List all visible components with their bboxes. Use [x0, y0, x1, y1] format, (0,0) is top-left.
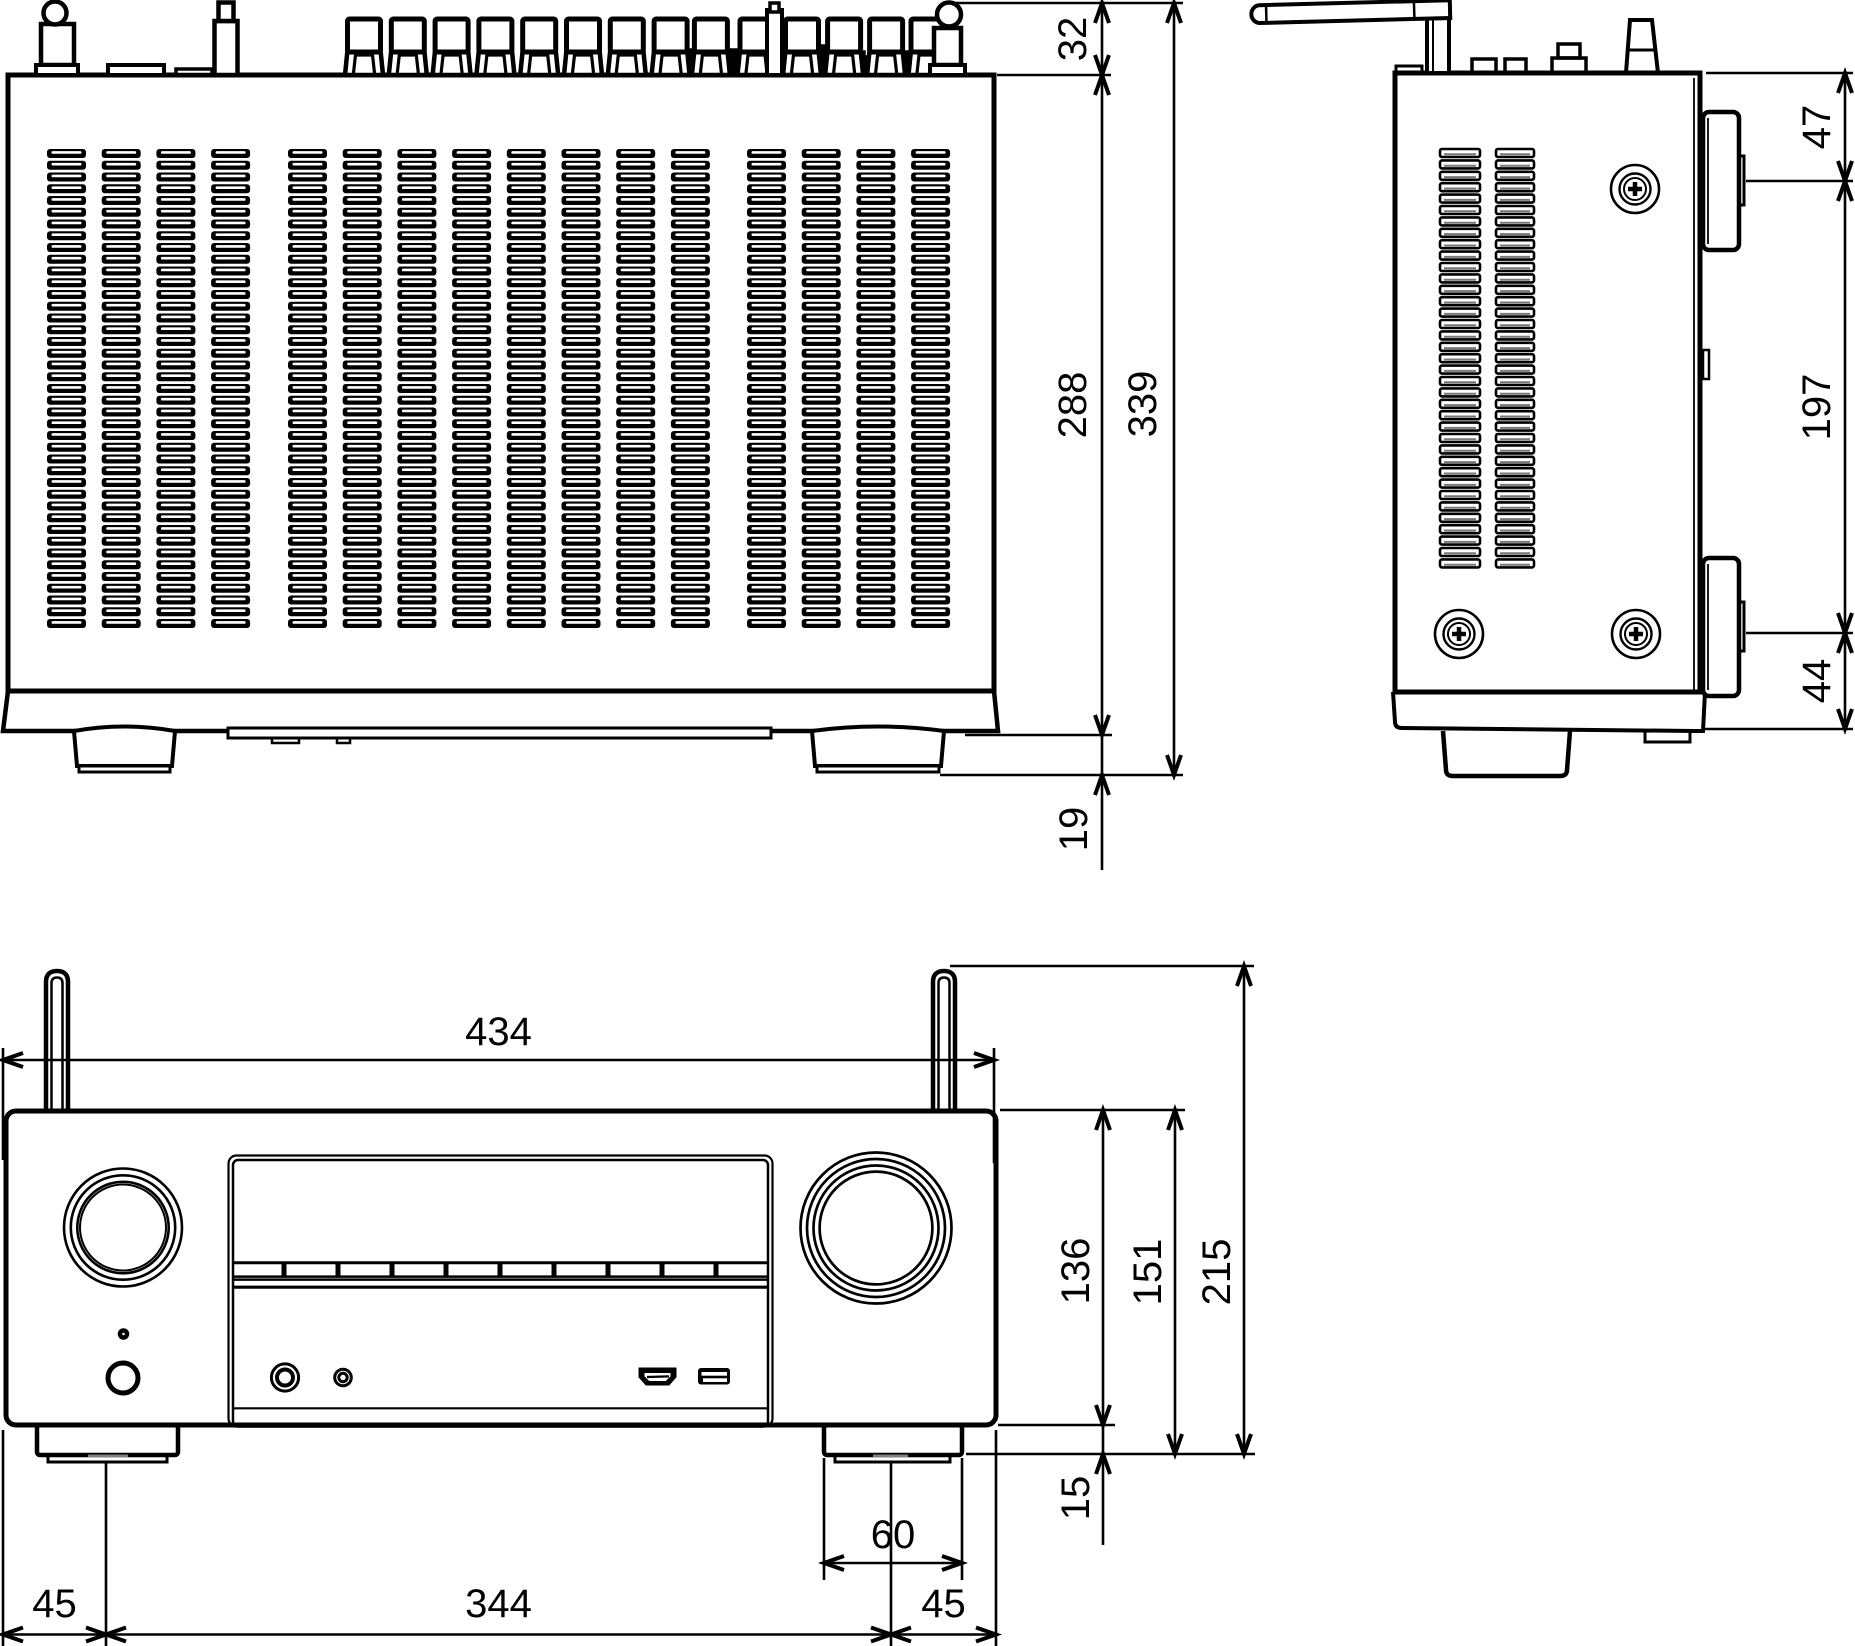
svg-text:344: 344 [465, 1582, 532, 1626]
svg-text:339: 339 [1121, 371, 1165, 438]
svg-text:45: 45 [921, 1582, 966, 1626]
svg-text:45: 45 [32, 1582, 77, 1626]
svg-text:60: 60 [871, 1513, 916, 1557]
svg-text:434: 434 [465, 1010, 532, 1054]
svg-text:15: 15 [1054, 1476, 1098, 1521]
svg-text:136: 136 [1054, 1238, 1098, 1305]
svg-text:151: 151 [1126, 1239, 1170, 1306]
svg-text:215: 215 [1195, 1239, 1239, 1306]
svg-text:197: 197 [1795, 374, 1839, 441]
svg-text:288: 288 [1051, 372, 1095, 439]
svg-text:19: 19 [1052, 807, 1096, 852]
svg-text:32: 32 [1051, 17, 1095, 62]
svg-text:47: 47 [1795, 105, 1839, 150]
svg-text:44: 44 [1795, 659, 1839, 704]
